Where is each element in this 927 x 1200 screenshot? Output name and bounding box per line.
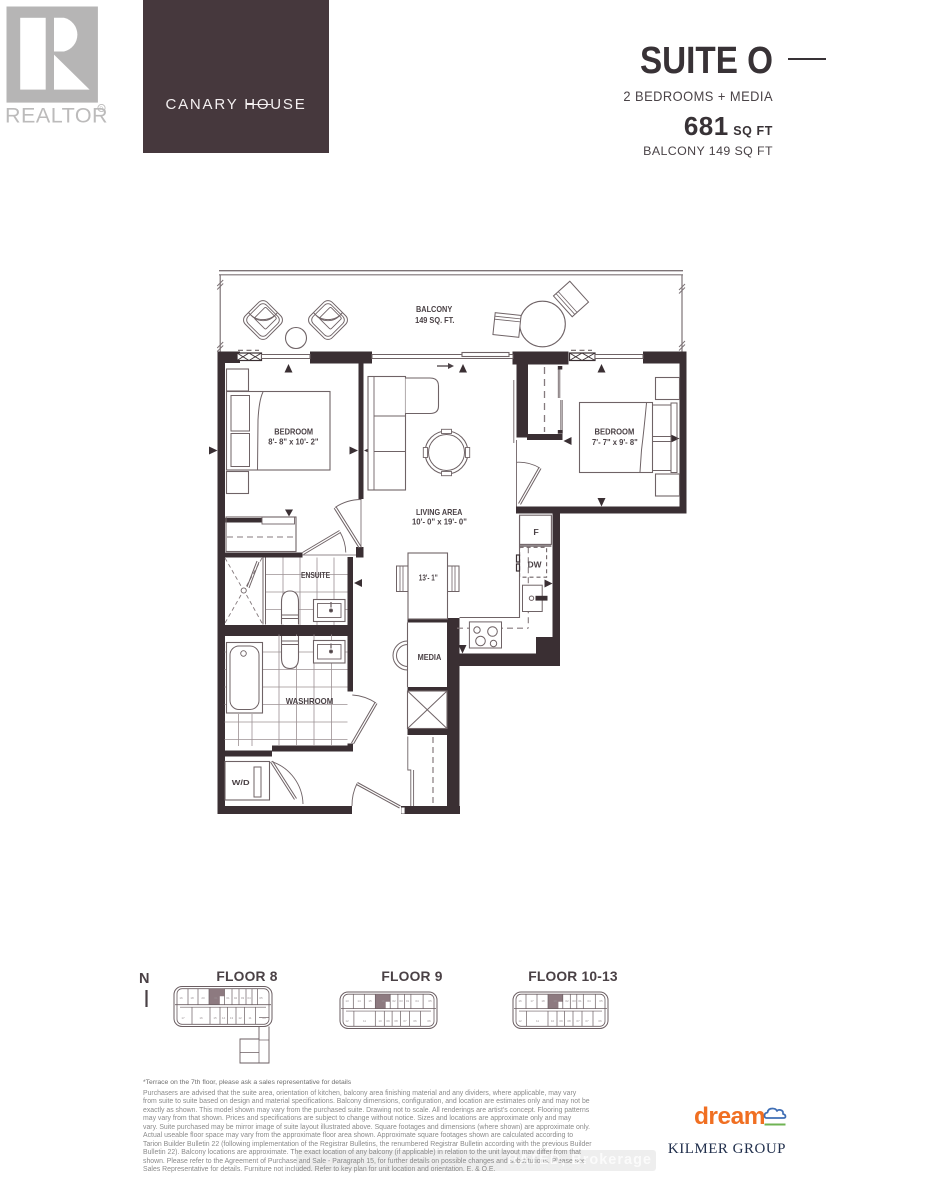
svg-text:FLOOR 10-13: FLOOR 10-13: [528, 969, 618, 984]
svg-text:12: 12: [238, 1016, 242, 1020]
svg-text:01: 01: [226, 996, 230, 1000]
svg-text:16: 16: [179, 996, 183, 1000]
svg-text:02: 02: [392, 999, 396, 1003]
svg-text:LIVING AREA: LIVING AREA: [416, 508, 462, 517]
svg-text:07: 07: [585, 1019, 589, 1023]
svg-text:FLOOR 8: FLOOR 8: [216, 969, 277, 984]
svg-text:11: 11: [363, 1019, 366, 1023]
svg-text:10: 10: [378, 1019, 382, 1023]
svg-text:13: 13: [345, 999, 349, 1003]
svg-text:18: 18: [190, 996, 194, 1000]
svg-text:11: 11: [536, 1019, 539, 1023]
svg-text:13'- 1": 13'- 1": [419, 574, 438, 583]
svg-text:06: 06: [427, 1019, 431, 1023]
svg-text:ENSUITE: ENSUITE: [301, 571, 331, 580]
svg-text:149 SQ. FT.: 149 SQ. FT.: [415, 316, 454, 325]
svg-text:BALCONY: BALCONY: [416, 305, 453, 314]
svg-text:09: 09: [386, 1019, 390, 1023]
svg-text:06: 06: [598, 1019, 602, 1023]
svg-text:09: 09: [559, 1019, 563, 1023]
svg-text:06: 06: [413, 1019, 417, 1023]
svg-text:W/D: W/D: [232, 778, 250, 787]
svg-text:07: 07: [403, 1019, 407, 1023]
svg-text:11: 11: [248, 1016, 251, 1020]
svg-text:16: 16: [518, 999, 522, 1003]
svg-text:05: 05: [259, 996, 263, 1000]
svg-text:F: F: [533, 528, 539, 537]
svg-text:07: 07: [576, 1019, 580, 1023]
svg-text:17: 17: [181, 1016, 185, 1020]
svg-text:16: 16: [199, 1016, 203, 1020]
svg-text:01: 01: [578, 999, 582, 1003]
svg-text:18: 18: [541, 999, 545, 1003]
svg-text:08: 08: [567, 1019, 571, 1023]
svg-text:19: 19: [553, 999, 557, 1003]
svg-text:10: 10: [551, 1019, 555, 1023]
svg-text:14: 14: [357, 999, 361, 1003]
svg-text:01: 01: [214, 996, 218, 1000]
svg-text:05: 05: [599, 999, 603, 1003]
svg-text:12: 12: [518, 1019, 522, 1023]
svg-text:01: 01: [406, 999, 410, 1003]
svg-text:06: 06: [262, 1016, 266, 1020]
svg-text:04: 04: [247, 996, 251, 1000]
svg-text:8'- 8" x 10'- 2": 8'- 8" x 10'- 2": [268, 437, 318, 446]
svg-text:04: 04: [587, 999, 591, 1003]
svg-text:04: 04: [415, 999, 419, 1003]
svg-text:17: 17: [530, 999, 534, 1003]
svg-text:15: 15: [213, 1016, 217, 1020]
svg-text:13: 13: [230, 1016, 234, 1020]
svg-text:N: N: [139, 971, 149, 987]
svg-text:03: 03: [572, 999, 576, 1003]
svg-text:BEDROOM: BEDROOM: [595, 428, 635, 437]
svg-text:DW: DW: [528, 561, 542, 570]
svg-text:MEDIA: MEDIA: [418, 653, 442, 662]
svg-text:FLOOR 9: FLOOR 9: [381, 969, 442, 984]
svg-text:WASHROOM: WASHROOM: [286, 697, 334, 706]
svg-text:03: 03: [399, 999, 403, 1003]
svg-text:10'- 0" x 19'- 0": 10'- 0" x 19'- 0": [412, 518, 467, 527]
svg-text:05: 05: [428, 999, 432, 1003]
svg-text:BEDROOM: BEDROOM: [274, 428, 313, 437]
svg-text:15: 15: [368, 999, 372, 1003]
svg-text:14: 14: [222, 1016, 226, 1020]
svg-text:12: 12: [345, 1019, 349, 1023]
svg-text:02: 02: [234, 996, 238, 1000]
svg-text:08: 08: [394, 1019, 398, 1023]
svg-text:16: 16: [381, 999, 385, 1003]
svg-text:03: 03: [241, 996, 245, 1000]
svg-text:02: 02: [565, 999, 569, 1003]
svg-text:7'- 7" x 9'- 8": 7'- 7" x 9'- 8": [592, 438, 638, 447]
svg-text:20: 20: [201, 996, 205, 1000]
